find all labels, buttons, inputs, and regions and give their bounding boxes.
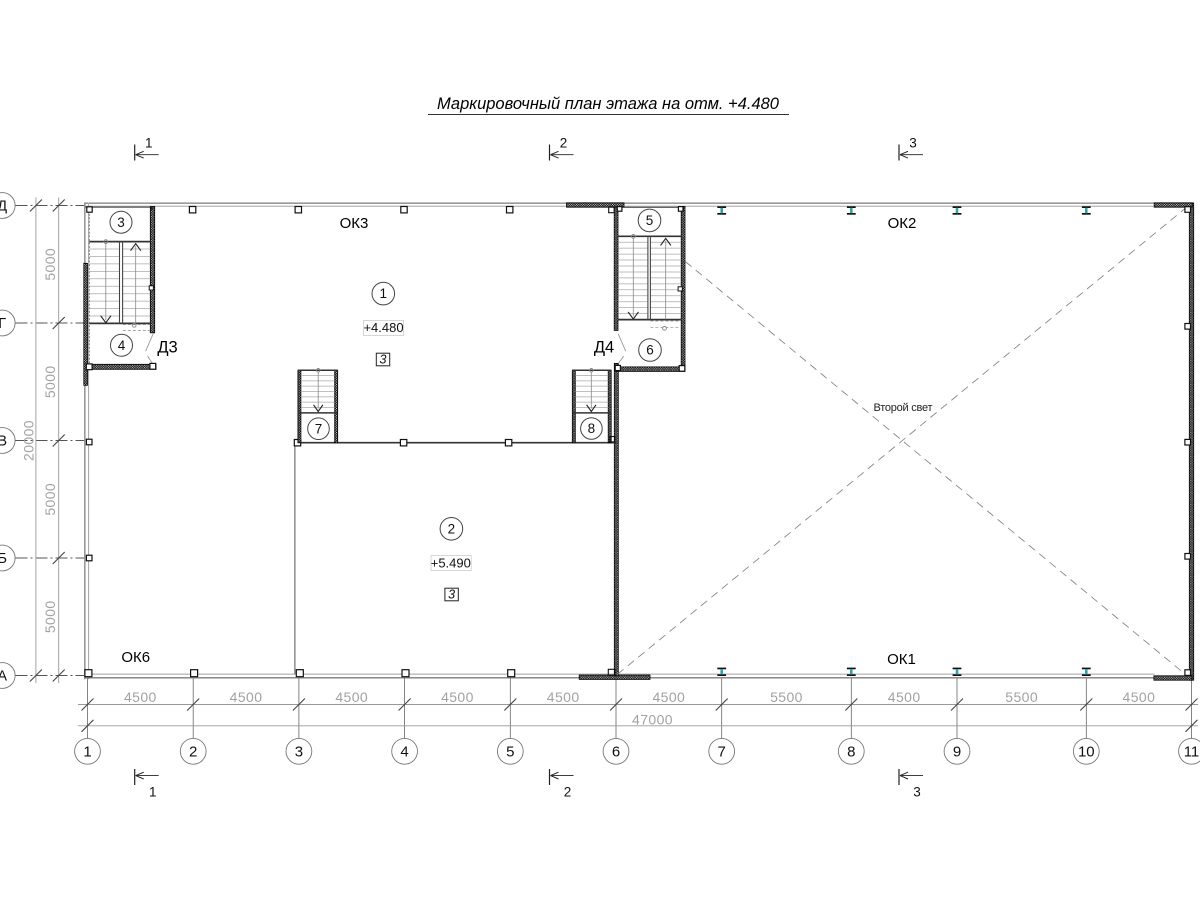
svg-text:Б: Б <box>0 551 7 567</box>
svg-text:4500: 4500 <box>441 689 474 705</box>
svg-text:5: 5 <box>506 743 514 760</box>
svg-text:47000: 47000 <box>632 711 673 727</box>
svg-text:1: 1 <box>83 743 91 760</box>
svg-text:5000: 5000 <box>42 365 58 398</box>
svg-text:9: 9 <box>953 743 961 760</box>
svg-text:6: 6 <box>646 343 654 358</box>
svg-text:2: 2 <box>189 743 197 760</box>
svg-text:А: А <box>0 669 7 685</box>
svg-text:5: 5 <box>646 213 654 228</box>
svg-text:3: 3 <box>117 215 125 230</box>
svg-text:ОК2: ОК2 <box>888 215 917 232</box>
svg-text:2: 2 <box>448 521 456 536</box>
svg-text:Д: Д <box>0 199 7 215</box>
svg-text:4500: 4500 <box>124 689 157 705</box>
svg-text:4500: 4500 <box>547 689 580 705</box>
svg-text:2: 2 <box>564 785 572 800</box>
svg-text:Маркировочный план этажа на от: Маркировочный план этажа на отм. +4.480 <box>437 95 780 113</box>
svg-text:1: 1 <box>380 286 388 301</box>
svg-text:4500: 4500 <box>888 689 921 705</box>
svg-text:8: 8 <box>847 743 855 760</box>
svg-text:5500: 5500 <box>1005 689 1038 705</box>
svg-text:7: 7 <box>718 743 726 760</box>
svg-text:20000: 20000 <box>21 420 37 461</box>
svg-text:5000: 5000 <box>42 600 58 633</box>
svg-text:ОК1: ОК1 <box>887 651 916 668</box>
svg-text:4500: 4500 <box>1123 689 1156 705</box>
svg-text:6: 6 <box>612 743 620 760</box>
svg-text:5000: 5000 <box>42 248 58 281</box>
svg-text:2: 2 <box>560 136 568 151</box>
svg-text:Второй свет: Второй свет <box>874 402 933 414</box>
svg-text:Д4: Д4 <box>594 339 614 357</box>
svg-text:4: 4 <box>400 743 408 760</box>
svg-text:4500: 4500 <box>652 689 685 705</box>
svg-text:3: 3 <box>909 136 917 151</box>
svg-text:ОК6: ОК6 <box>121 649 150 666</box>
svg-text:Г: Г <box>0 316 6 332</box>
svg-text:5500: 5500 <box>770 689 803 705</box>
svg-text:4: 4 <box>118 338 126 353</box>
svg-text:10: 10 <box>1078 743 1095 760</box>
svg-text:1: 1 <box>149 785 157 800</box>
svg-text:1: 1 <box>145 136 153 151</box>
svg-text:+4.480: +4.480 <box>363 320 403 335</box>
svg-text:3: 3 <box>295 743 303 760</box>
svg-text:ОК3: ОК3 <box>340 215 369 232</box>
svg-text:Д3: Д3 <box>157 339 177 357</box>
svg-text:8: 8 <box>588 421 596 436</box>
svg-text:4500: 4500 <box>335 689 368 705</box>
svg-text:3: 3 <box>913 785 921 800</box>
svg-text:+5.490: +5.490 <box>431 555 471 570</box>
svg-text:4500: 4500 <box>230 689 263 705</box>
svg-text:3: 3 <box>380 352 387 366</box>
svg-text:11: 11 <box>1184 743 1200 760</box>
svg-text:3: 3 <box>448 587 455 601</box>
svg-text:В: В <box>0 434 7 450</box>
svg-text:7: 7 <box>315 421 323 436</box>
svg-text:5000: 5000 <box>42 483 58 516</box>
